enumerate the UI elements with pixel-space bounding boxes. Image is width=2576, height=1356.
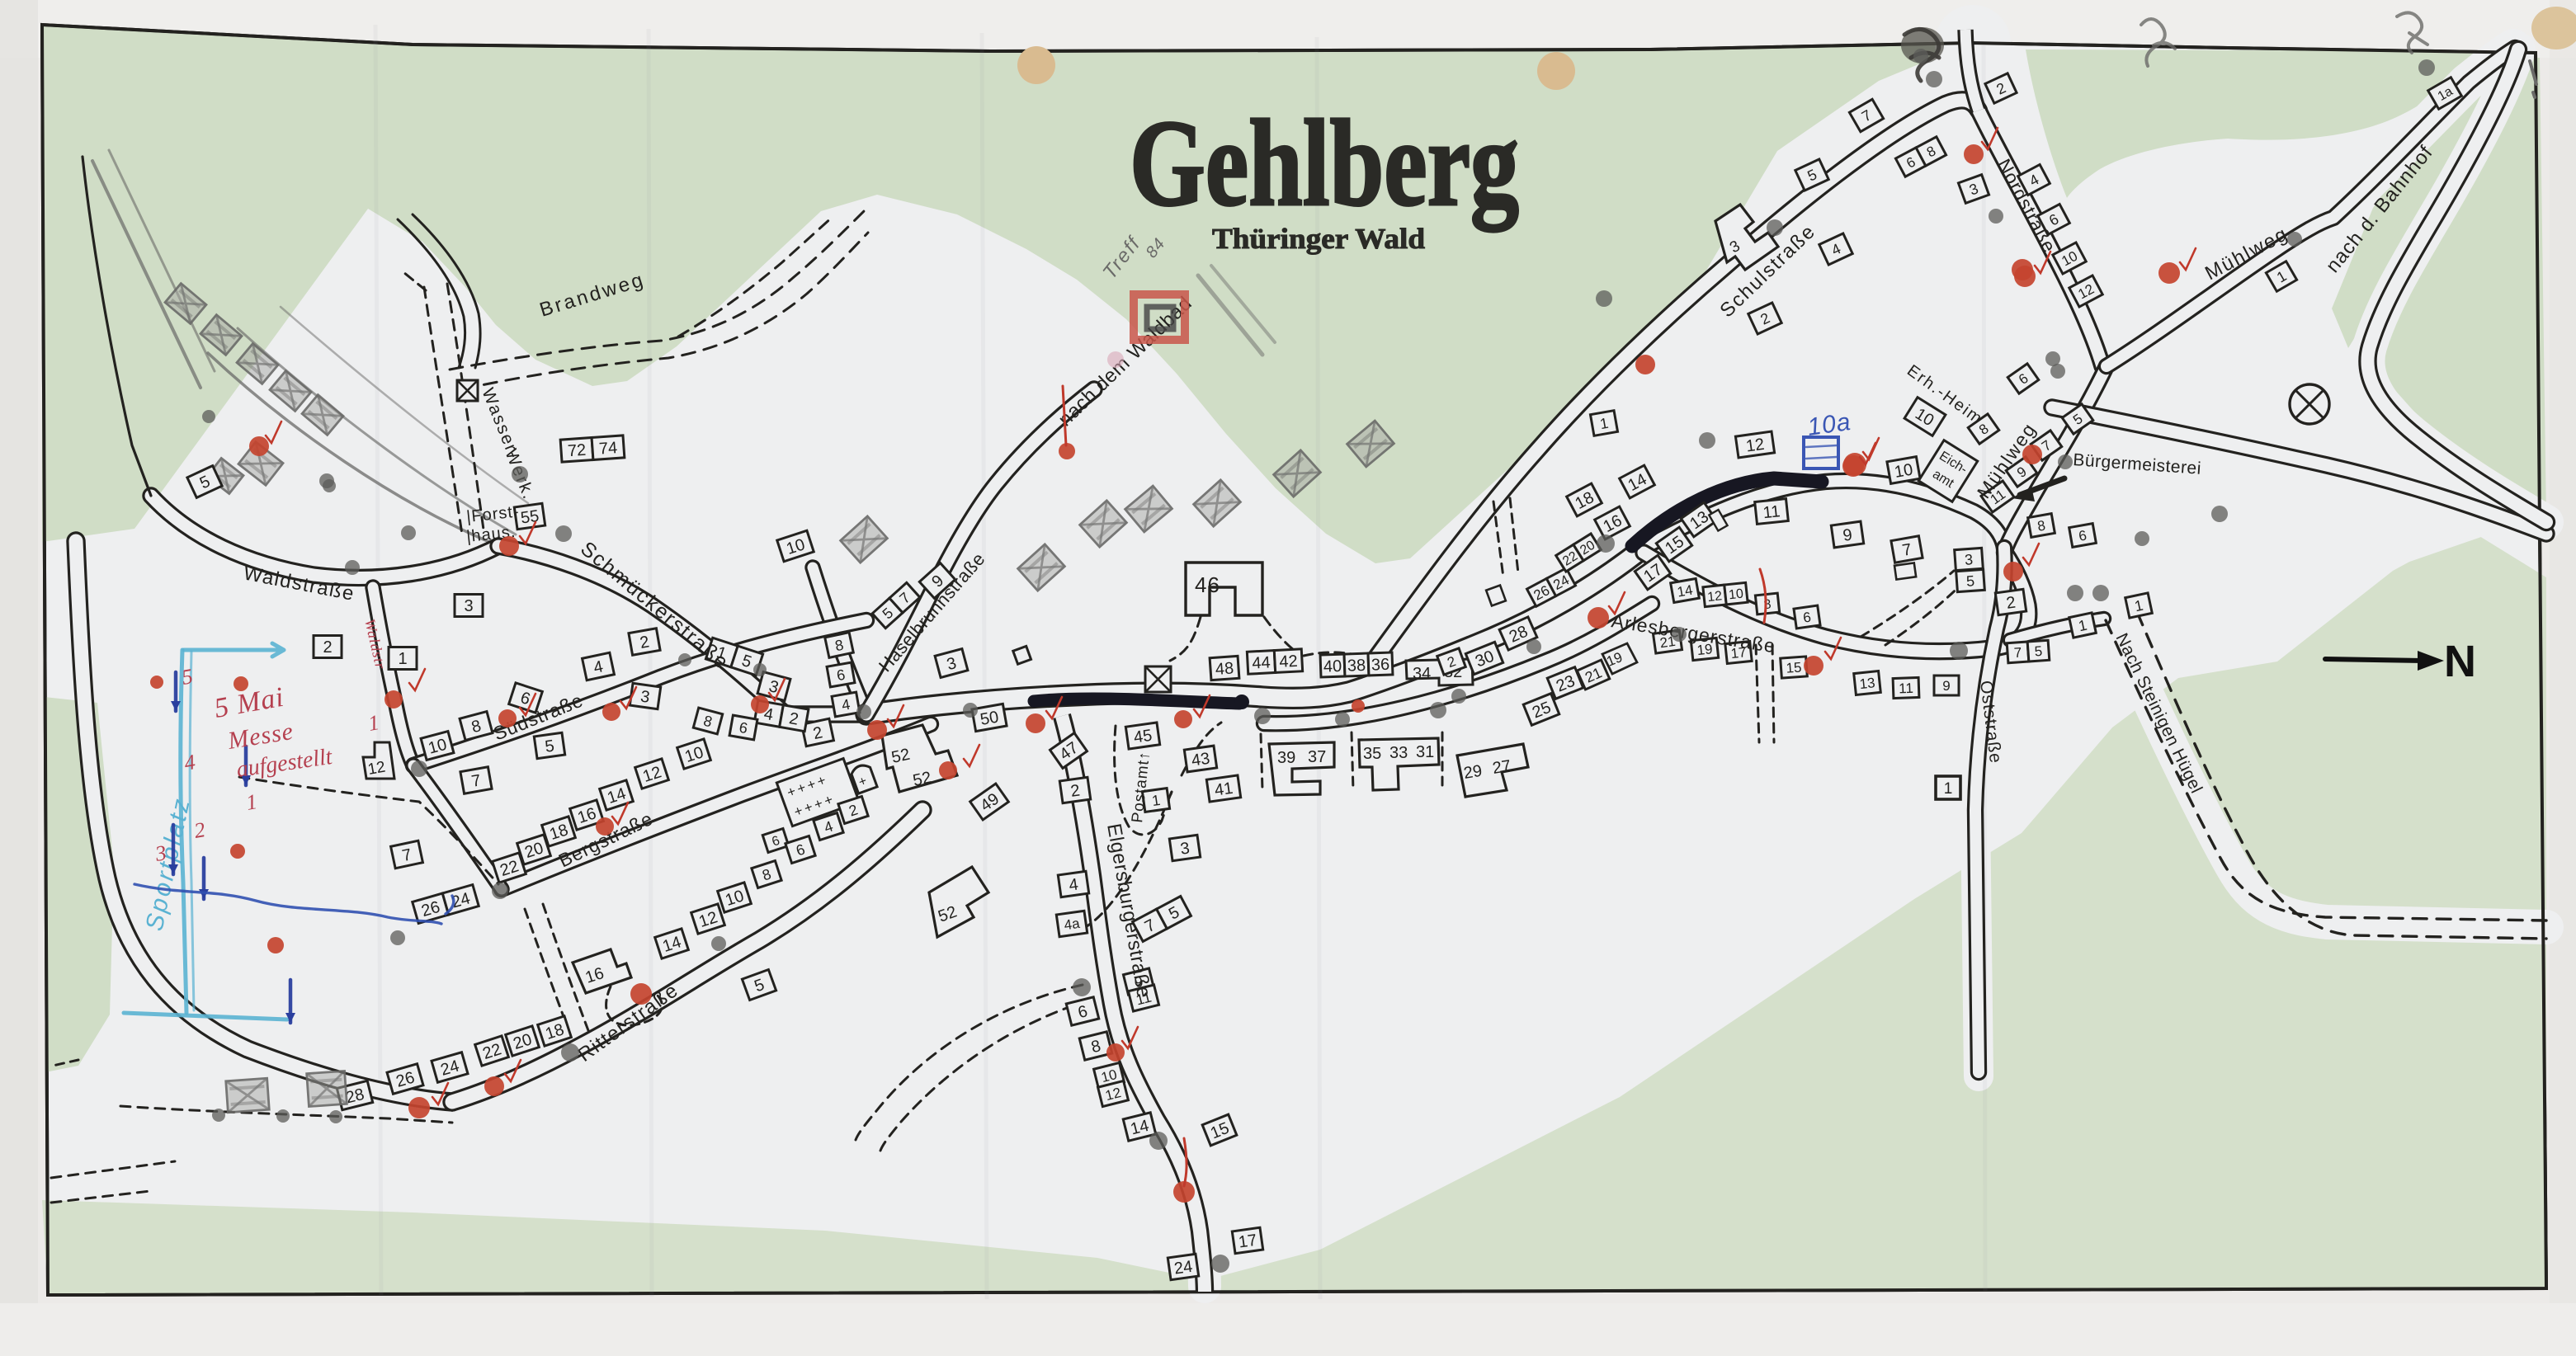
svg-text:12: 12 (366, 759, 386, 779)
svg-text:9: 9 (1942, 678, 1950, 694)
svg-text:36: 36 (1371, 656, 1390, 675)
svg-text:2: 2 (323, 638, 332, 657)
svg-text:1: 1 (1944, 780, 1953, 798)
svg-text:3: 3 (1964, 551, 1973, 568)
svg-text:41: 41 (1214, 779, 1234, 800)
svg-text:52: 52 (889, 746, 911, 767)
svg-text:48: 48 (1215, 659, 1234, 678)
svg-text:10: 10 (1728, 587, 1744, 603)
svg-text:10: 10 (1893, 460, 1914, 482)
svg-text:38: 38 (1347, 657, 1366, 676)
svg-text:5: 5 (1965, 572, 1974, 590)
svg-text:11: 11 (1899, 680, 1913, 697)
svg-text:52: 52 (911, 769, 932, 790)
svg-text:46: 46 (1195, 572, 1220, 597)
svg-text:24: 24 (1173, 1258, 1194, 1278)
svg-text:39: 39 (1277, 749, 1295, 767)
svg-text:14: 14 (1676, 582, 1694, 600)
svg-text:42: 42 (1279, 652, 1298, 671)
svg-text:34: 34 (1413, 665, 1431, 683)
svg-text:11: 11 (1762, 502, 1781, 522)
svg-text:31: 31 (1416, 743, 1434, 761)
svg-text:45: 45 (1133, 727, 1154, 747)
svg-text:Thüringer Wald: Thüringer Wald (1212, 223, 1426, 255)
svg-text:74: 74 (598, 439, 618, 458)
svg-text:43: 43 (1191, 750, 1211, 770)
svg-text:12: 12 (1706, 589, 1723, 605)
svg-text:1: 1 (398, 650, 407, 668)
svg-text:17: 17 (1238, 1231, 1258, 1252)
svg-text:4a: 4a (1063, 916, 1081, 934)
svg-text:13: 13 (1859, 675, 1876, 692)
svg-text:15: 15 (1786, 659, 1802, 676)
svg-text:29: 29 (1462, 762, 1483, 783)
svg-text:72: 72 (567, 441, 587, 460)
svg-text:50: 50 (979, 708, 1000, 729)
svg-text:33: 33 (1389, 744, 1408, 762)
svg-text:55: 55 (520, 507, 540, 528)
svg-text:27: 27 (1491, 757, 1512, 778)
svg-text:5: 5 (2034, 643, 2043, 660)
svg-text:37: 37 (1308, 748, 1326, 766)
svg-text:35: 35 (1363, 745, 1381, 763)
svg-text:7: 7 (2013, 645, 2022, 662)
svg-text:12: 12 (1745, 436, 1766, 456)
svg-text:3: 3 (464, 597, 473, 615)
svg-text:Gehlberg: Gehlberg (1130, 95, 1519, 232)
svg-text:N: N (2444, 637, 2476, 686)
svg-text:44: 44 (1252, 653, 1271, 672)
svg-text:40: 40 (1323, 657, 1342, 676)
